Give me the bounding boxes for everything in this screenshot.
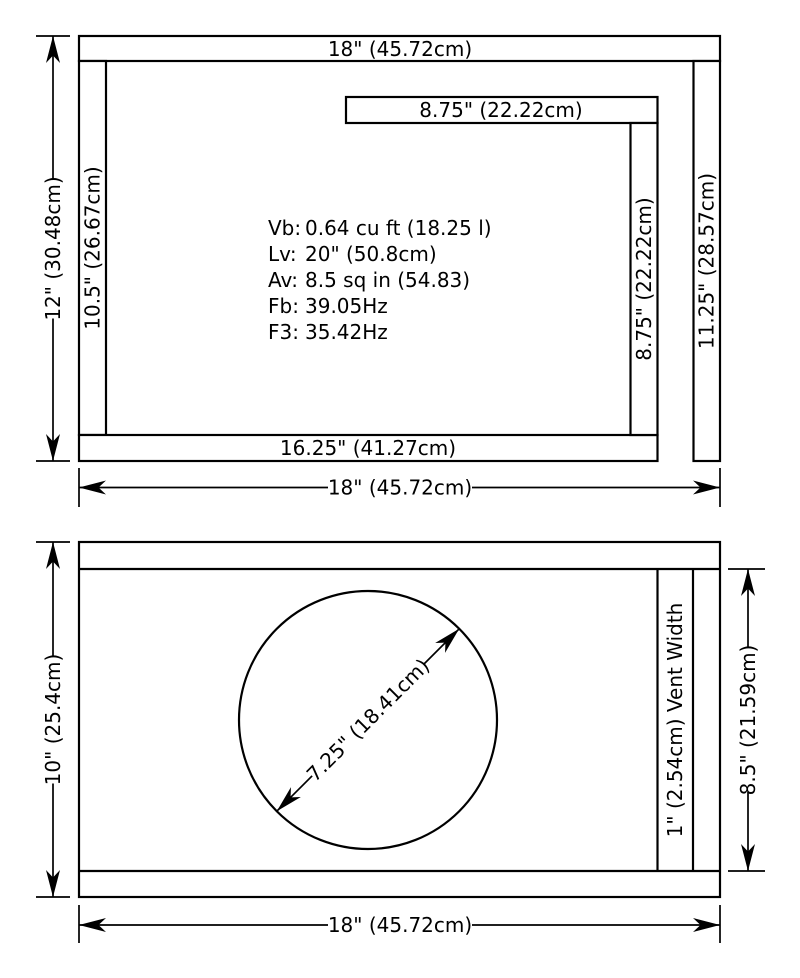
spec-label: Vb: xyxy=(268,216,301,240)
height-dimension-label: 12" (30.48cm) xyxy=(41,176,65,320)
right-panel-dimension-label: 11.25" (28.57cm) xyxy=(695,173,719,349)
specs-block: Vb: 0.64 cu ft (18.25 l) Lv: 20" (50.8cm… xyxy=(268,216,492,344)
enclosure-diagram: 18" (45.72cm) 8.75" (22.22cm) 16.25" (41… xyxy=(0,0,800,978)
front-view-height-dimension: 10" (25.4cm) xyxy=(36,542,70,897)
enclosure-plan-page: 18" (45.72cm) 8.75" (22.22cm) 16.25" (41… xyxy=(0,0,800,978)
spec-label: Lv: xyxy=(268,242,297,266)
spec-label: F3: xyxy=(268,320,299,344)
inner-height-dimension-label: 8.5" (21.59cm) xyxy=(736,645,760,796)
front-height-dimension-label: 10" (25.4cm) xyxy=(41,654,65,786)
spec-value: 20" (50.8cm) xyxy=(305,242,437,266)
left-panel-dimension-label: 10.5" (26.67cm) xyxy=(81,166,105,329)
inner-vent-panel-dimension-label: 8.75" (22.22cm) xyxy=(632,197,656,360)
spec-value: 39.05Hz xyxy=(305,294,388,318)
top-view-height-dimension: 12" (30.48cm) xyxy=(36,36,70,461)
width-dimension-label: 18" (45.72cm) xyxy=(328,476,472,500)
spec-value: 0.64 cu ft (18.25 l) xyxy=(305,216,492,240)
vent-width-label: 1" (2.54cm) Vent Width xyxy=(663,603,687,838)
top-view: 18" (45.72cm) 8.75" (22.22cm) 16.25" (41… xyxy=(36,36,720,507)
top-view-width-dimension: 18" (45.72cm) xyxy=(79,468,720,507)
front-view-inner-height-dimension: 8.5" (21.59cm) xyxy=(728,569,765,871)
front-width-dimension-label: 18" (45.72cm) xyxy=(328,913,472,937)
spec-value: 35.42Hz xyxy=(305,320,388,344)
spec-value: 8.5 sq in (54.83) xyxy=(305,268,470,292)
spec-label: Fb: xyxy=(268,294,299,318)
front-panel-dimension-label: 16.25" (41.27cm) xyxy=(280,436,456,460)
front-view-width-dimension: 18" (45.72cm) xyxy=(79,905,720,943)
front-view: 1" (2.54cm) Vent Width 7.25" (18.41cm) 1… xyxy=(36,542,765,943)
spec-label: Av: xyxy=(268,268,298,292)
top-panel-dimension-label: 18" (45.72cm) xyxy=(328,37,472,61)
vent-shelf-dimension-label: 8.75" (22.22cm) xyxy=(419,98,582,122)
